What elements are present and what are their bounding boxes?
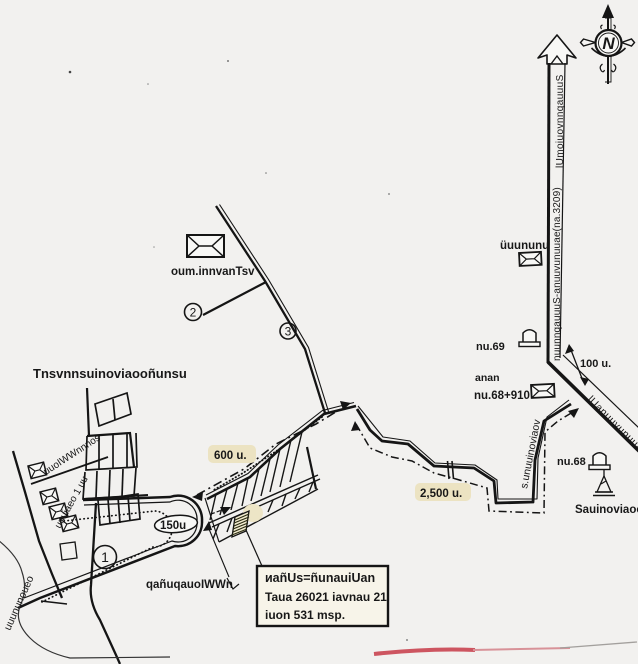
svg-text:nu.69: nu.69	[476, 341, 505, 353]
svg-text:nu.68+910: nu.68+910	[474, 390, 530, 402]
svg-text:1: 1	[101, 549, 109, 565]
svg-text:iuon 531 msp.: iuon 531 msp.	[265, 608, 345, 622]
svg-text:anan: anan	[475, 372, 500, 384]
svg-text:oum.innvanTsv: oum.innvanTsv	[171, 266, 255, 278]
svg-text:lUmoiuovnnqauuuS: lUmoiuovnnqauuuS	[555, 74, 566, 168]
svg-text:N: N	[602, 34, 615, 53]
svg-text:2: 2	[190, 306, 197, 320]
svg-text:Tnsvnnsuinoviaooñunsu: Tnsvnnsuinoviaooñunsu	[33, 366, 187, 381]
svg-text:100 u.: 100 u.	[580, 358, 611, 370]
svg-text:2,500 u.: 2,500 u.	[420, 488, 462, 500]
svg-text:150u: 150u	[160, 520, 186, 532]
svg-text:Tauа 26021 iavnau 21: Tauа 26021 iavnau 21	[265, 590, 387, 604]
svg-text:nu.68: nu.68	[557, 456, 586, 468]
svg-text:qañuqauoIWWn: qañuqauoIWWn	[146, 579, 233, 591]
svg-text:Sauinoviaoo: Sauinoviaoo	[575, 504, 638, 516]
svg-text:3: 3	[285, 325, 292, 339]
svg-text:nuunnqauuuS-anuuvunuuae(na.320: nuunnqauuuS-anuuvunuuae(na.3209)	[552, 187, 563, 361]
svg-text:600 u.: 600 u.	[214, 450, 247, 462]
svg-text:üuununu: üuununu	[500, 240, 549, 252]
svg-text:иañUs=ñunauiUan: иañUs=ñunauiUan	[265, 571, 375, 585]
